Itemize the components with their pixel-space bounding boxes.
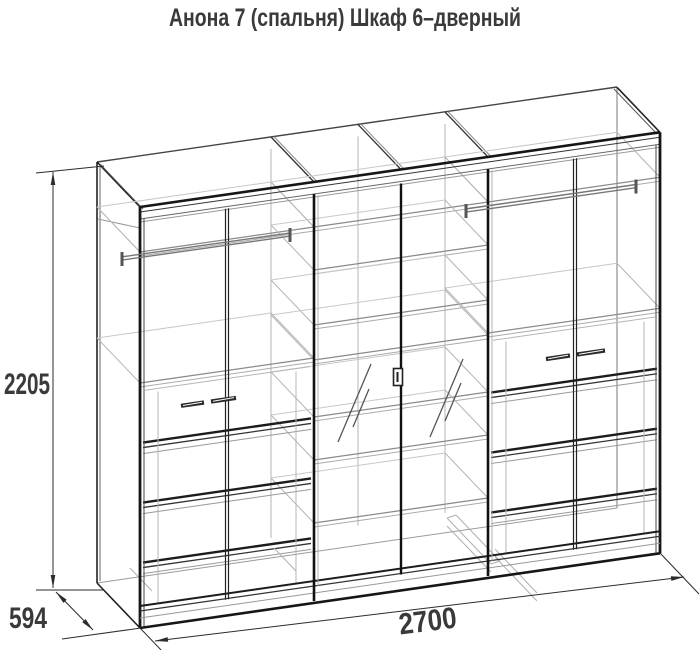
- technical-drawing: Анона 7 (спальня) Шкаф 6–дверный 2205 59…: [0, 0, 700, 650]
- height-dimension-label: 2205: [4, 368, 50, 401]
- wardrobe-wireframe: [97, 87, 660, 628]
- drawing-canvas: Анона 7 (спальня) Шкаф 6–дверный 2205 59…: [0, 0, 700, 650]
- width-dimension-label: 2700: [397, 602, 459, 642]
- drawing-title: Анона 7 (спальня) Шкаф 6–дверный: [169, 4, 521, 32]
- depth-dimension-label: 594: [9, 602, 47, 635]
